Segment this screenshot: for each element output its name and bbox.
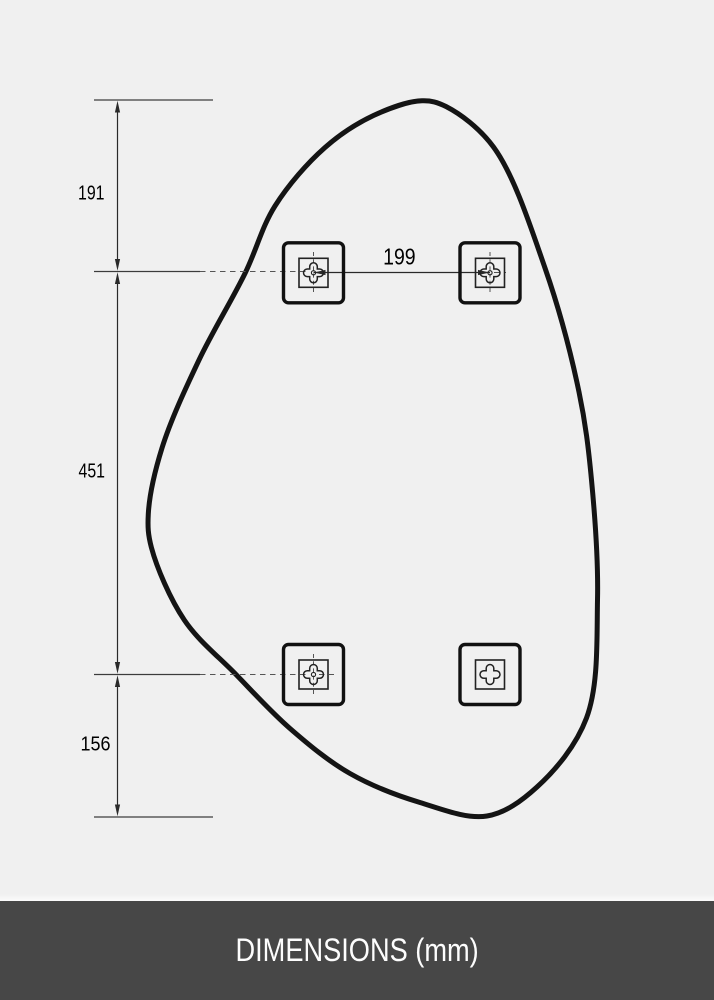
svg-text:156: 156 <box>81 732 111 755</box>
svg-text:191: 191 <box>78 182 105 205</box>
svg-text:199: 199 <box>383 244 416 270</box>
svg-text:451: 451 <box>79 459 106 482</box>
